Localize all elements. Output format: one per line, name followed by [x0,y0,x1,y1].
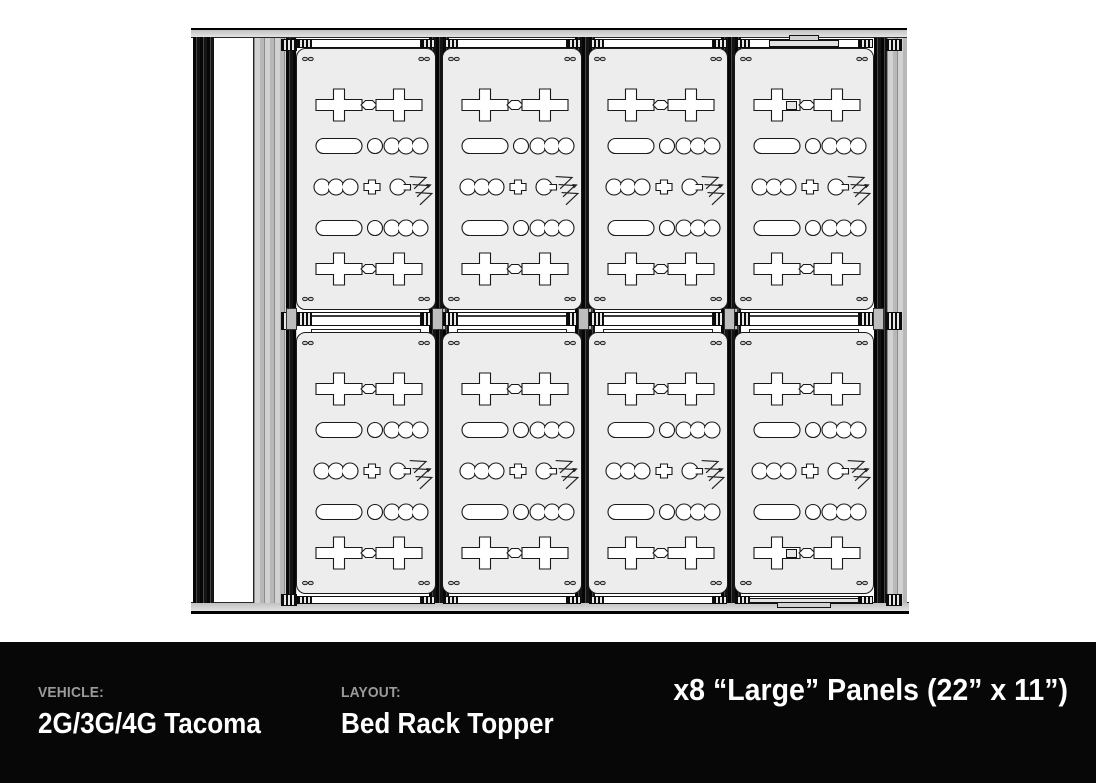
layout-value: Bed Rack Topper [341,708,554,741]
crossbar-bottom [588,596,728,604]
molle-panel-3 [588,48,728,310]
bed-rack-topper-diagram [0,0,1096,642]
crossbar-bottom [442,596,582,604]
vehicle-value: 2G/3G/4G Tacoma [38,708,261,741]
molle-panel-4 [734,48,874,310]
rail-hatch [886,594,902,606]
panel-headline: x8 “Large” Panels (22” x 11”) [673,672,1068,708]
mount-bracket-top [769,40,839,47]
molle-panel-8 [734,332,874,594]
crossbar-top [442,39,582,48]
rail-hatch [886,39,902,51]
molle-panel-1 [296,48,436,310]
left-side-rail [193,37,214,603]
molle-panel-5 [296,332,436,594]
crossbar-bottom [296,596,436,604]
rail-hatch [886,312,902,330]
rail-hatch [281,594,297,606]
crossbar-middle [734,312,874,326]
molle-panel-7 [588,332,728,594]
rail-hatch [281,39,297,51]
clamp-detail [786,549,797,558]
vehicle-label: VEHICLE: [38,684,104,701]
crossbar-top [588,39,728,48]
molle-panel-6 [442,332,582,594]
product-image: VEHICLE: 2G/3G/4G Tacoma LAYOUT: Bed Rac… [0,0,1096,783]
crossbar-middle [296,312,436,326]
crossbar-middle [442,312,582,326]
layout-label: LAYOUT: [341,684,401,701]
clamp-detail [786,101,797,110]
crossbar-top [296,39,436,48]
caption-bar: VEHICLE: 2G/3G/4G Tacoma LAYOUT: Bed Rac… [0,642,1096,783]
crossbar-middle [588,312,728,326]
mount-bracket-bottom [749,598,859,603]
molle-panel-2 [442,48,582,310]
